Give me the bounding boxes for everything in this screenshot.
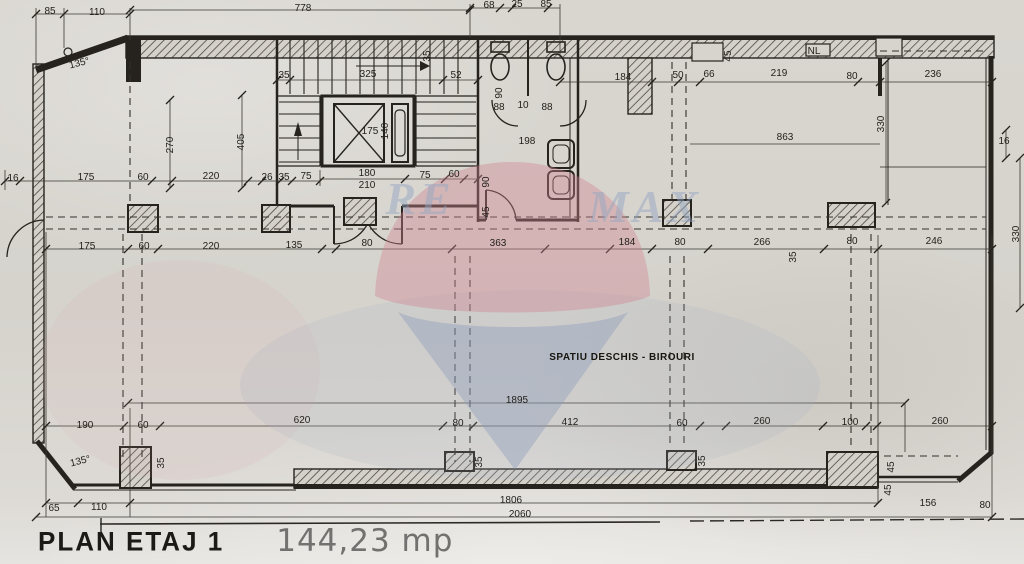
- dimension-label: 110: [91, 502, 107, 513]
- dimension-label: 35: [697, 455, 708, 467]
- dimension-label: 90: [481, 176, 492, 188]
- dimension-label: 175: [362, 126, 379, 137]
- dimension-label: 778: [295, 3, 312, 14]
- dimension-label: 110: [89, 7, 105, 18]
- dimension-label: 50: [672, 70, 684, 81]
- room-label: SPATIU DESCHIS - BIROURI: [549, 352, 695, 363]
- dimension-label: 1895: [506, 395, 529, 406]
- dimension-label: 45: [886, 461, 897, 473]
- dimension-label: 80: [846, 71, 858, 82]
- door-knob-detail: [64, 48, 72, 56]
- dimension-label: 35: [422, 50, 433, 62]
- dimension-label: 1806: [500, 495, 523, 506]
- column: [128, 205, 158, 232]
- dimension-label: 66: [703, 69, 715, 80]
- dimension-label: 88: [493, 102, 505, 113]
- dimension-label: 80: [452, 418, 464, 429]
- dimension-label: 68: [483, 0, 495, 11]
- dimension-label: 236: [925, 69, 942, 80]
- dimension-label: 35: [156, 457, 167, 469]
- dimension-label: 175: [78, 172, 95, 183]
- dimension-label: 16: [7, 173, 19, 184]
- door-swing-arc: [560, 100, 586, 126]
- dimension-label: 80: [674, 237, 686, 248]
- dimension-label: 325: [360, 69, 377, 80]
- elevator-counterweight: [395, 110, 405, 156]
- dimension-label: 270: [165, 136, 176, 153]
- dimension-label: 52: [450, 70, 462, 81]
- dimension-label: 135: [286, 240, 303, 251]
- column: [262, 205, 290, 232]
- watermark-text-max: MAX: [587, 181, 702, 232]
- dimension-label: 100: [842, 417, 859, 428]
- dimension-label: 198: [519, 136, 536, 147]
- dimension-label: 35: [278, 172, 290, 183]
- column: [344, 198, 376, 225]
- dimension-label: 863: [777, 132, 794, 143]
- floorplan-drawing: RE MAX 85110778682585135°353255235184506…: [0, 0, 1024, 564]
- plan-title: PLAN ETAJ 1: [38, 525, 224, 557]
- dimension-label: 60: [137, 420, 149, 431]
- dimension-label: 26: [261, 172, 273, 183]
- column: [828, 203, 875, 227]
- dimension-label: 85: [44, 6, 56, 17]
- dimension-label: 405: [236, 133, 247, 150]
- dimension-label: 260: [932, 416, 949, 427]
- dimension-label: 220: [203, 241, 220, 252]
- dimension-label: 330: [1011, 225, 1022, 242]
- dimension-label: 220: [203, 171, 220, 182]
- wall-bottom-edge: [294, 484, 878, 489]
- dimension-label: 260: [754, 416, 771, 427]
- wall-chamfer-bottomright: [958, 452, 992, 481]
- dimension-label: 184: [615, 72, 632, 83]
- floorplan-scan-page: RE MAX 85110778682585135°353255235184506…: [0, 0, 1024, 564]
- column: [827, 452, 878, 487]
- dimension-label: 210: [359, 180, 376, 191]
- dimension-label: 175: [79, 241, 96, 252]
- dimension-label: 412: [562, 417, 579, 428]
- dimension-label: NL: [808, 46, 821, 57]
- area-value: 144,23 mp: [276, 523, 453, 559]
- dimension-label: 60: [448, 169, 460, 180]
- dimension-label: 35: [788, 251, 799, 263]
- wall-niche-1: [692, 43, 723, 61]
- stair-arrow-up: [294, 122, 302, 136]
- dimension-label: 35: [474, 456, 485, 468]
- dimension-label: 16: [998, 136, 1010, 147]
- dimension-label: 80: [979, 500, 991, 511]
- dimension-label: 330: [876, 115, 887, 132]
- dimension-label: 80: [361, 238, 373, 249]
- dimension-label: 156: [920, 498, 937, 509]
- dimension-label: 60: [676, 418, 688, 429]
- dimension-label: 90: [494, 87, 505, 99]
- dimension-label: 135°: [69, 454, 92, 470]
- dimension-label: 75: [419, 170, 431, 181]
- dimension-label: 180: [359, 168, 376, 179]
- dimension-label: 65: [48, 503, 60, 514]
- dimension-label: 140: [380, 122, 391, 139]
- dimension-label: 60: [138, 241, 150, 252]
- dimension-label: 219: [771, 68, 788, 79]
- sink-basin: [553, 145, 569, 163]
- dimension-label: 60: [137, 172, 149, 183]
- wall-chamfer-bottomleft: [37, 441, 75, 489]
- dimension-label: 25: [511, 0, 523, 10]
- dimension-label: 363: [490, 238, 507, 249]
- dimension-label: 10: [517, 100, 529, 111]
- wall-niche-3: [876, 38, 902, 56]
- dimension-label: 246: [926, 236, 943, 247]
- title-bar: PLAN ETAJ 1 144,23 mp: [0, 518, 1024, 564]
- dimension-label: 45: [723, 50, 734, 62]
- dimension-label: 184: [619, 237, 636, 248]
- dimension-label: 620: [294, 415, 311, 426]
- dimension-label: 35: [278, 70, 290, 81]
- dimension-label: 190: [77, 420, 94, 431]
- dimension-label: 266: [754, 237, 771, 248]
- wall-pier-topleft: [126, 36, 141, 82]
- dimension-label: 88: [541, 102, 553, 113]
- dimension-label: 45: [481, 206, 492, 218]
- dimension-label: 80: [846, 236, 858, 247]
- dimension-label: 45: [883, 484, 894, 496]
- dimension-label: 85: [540, 0, 552, 10]
- dimension-label: 75: [300, 171, 312, 182]
